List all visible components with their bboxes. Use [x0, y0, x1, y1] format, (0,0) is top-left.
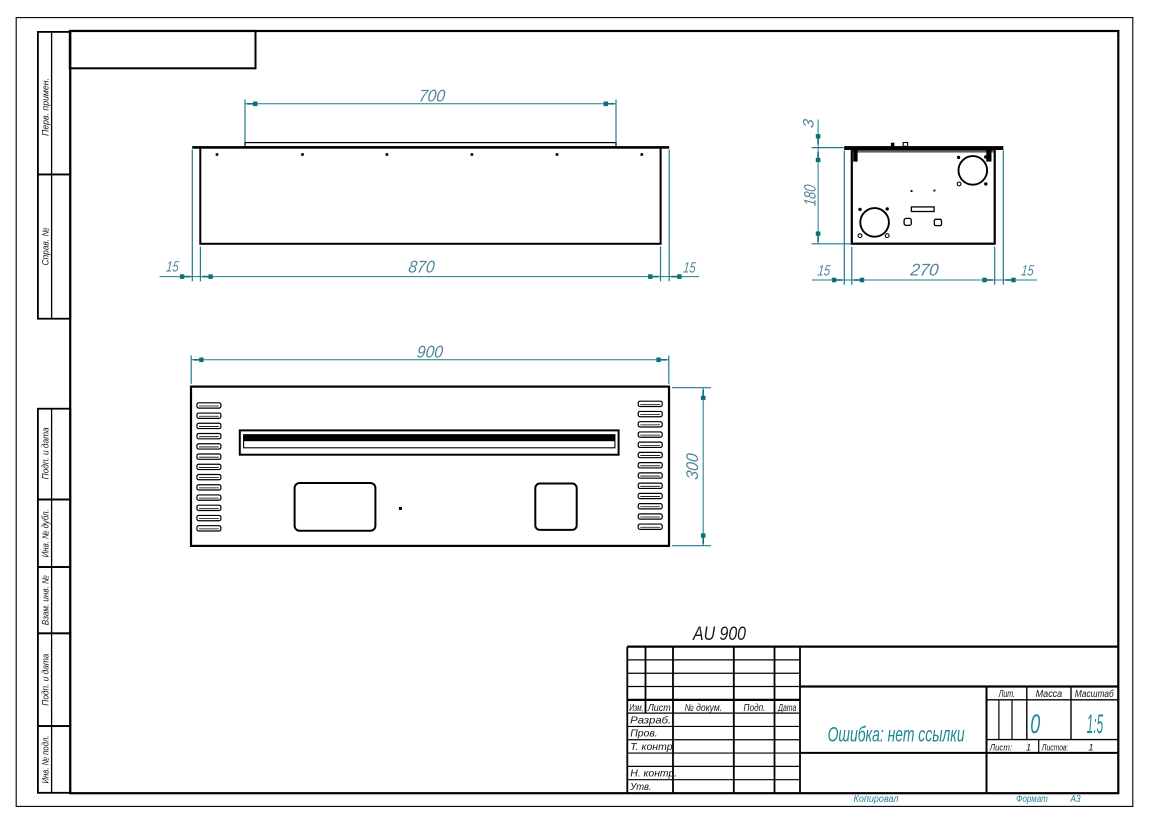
svg-text:Листов:: Листов: — [1041, 742, 1069, 752]
svg-text:15: 15 — [817, 263, 832, 280]
svg-text:Лист: Лист — [647, 703, 671, 714]
svg-text:Инв. № дубл.: Инв. № дубл. — [41, 509, 51, 557]
svg-text:№ докум.: № докум. — [685, 703, 723, 714]
svg-text:300: 300 — [683, 452, 702, 480]
svg-text:Формат: Формат — [1016, 794, 1048, 805]
svg-text:А3: А3 — [1070, 794, 1081, 805]
svg-text:900: 900 — [416, 343, 444, 362]
svg-text:Масса: Масса — [1036, 689, 1063, 700]
svg-text:180: 180 — [800, 183, 819, 207]
svg-text:Подп.: Подп. — [744, 703, 766, 714]
svg-text:Инв. № подл.: Инв. № подл. — [41, 736, 51, 784]
svg-text:1: 1 — [1026, 742, 1031, 752]
svg-text:15: 15 — [1020, 263, 1035, 280]
svg-text:Разраб.: Разраб. — [630, 714, 671, 726]
svg-text:AU 900: AU 900 — [692, 623, 746, 645]
svg-text:0: 0 — [1030, 709, 1040, 739]
svg-text:Лист:: Лист: — [989, 742, 1013, 752]
svg-text:Пров.: Пров. — [630, 728, 658, 740]
svg-text:870: 870 — [408, 258, 436, 277]
svg-text:Т. контр.: Т. контр. — [630, 741, 675, 753]
svg-text:1: 1 — [1088, 742, 1093, 752]
svg-text:270: 270 — [909, 261, 940, 280]
svg-text:Утв.: Утв. — [629, 781, 651, 793]
svg-text:Ошибка: нет ссылки: Ошибка: нет ссылки — [828, 724, 965, 747]
svg-text:Взам. инв. №: Взам. инв. № — [41, 575, 51, 625]
svg-text:Копировал: Копировал — [854, 794, 899, 805]
svg-text:Перв. примен.: Перв. примен. — [41, 78, 51, 136]
svg-text:1:5: 1:5 — [1087, 709, 1104, 739]
svg-text:Дата: Дата — [777, 703, 796, 714]
svg-text:700: 700 — [418, 87, 446, 106]
svg-text:Масштаб: Масштаб — [1075, 688, 1114, 700]
svg-text:Справ. №: Справ. № — [41, 227, 51, 265]
svg-text:Лит.: Лит. — [998, 689, 1015, 700]
svg-text:Н. контр.: Н. контр. — [630, 768, 677, 780]
svg-text:15: 15 — [165, 258, 180, 275]
svg-text:Изм.: Изм. — [629, 703, 643, 714]
svg-text:Подп. и дата: Подп. и дата — [41, 427, 51, 479]
svg-text:Подп. и дата: Подп. и дата — [41, 654, 51, 706]
svg-text:15: 15 — [682, 260, 697, 277]
